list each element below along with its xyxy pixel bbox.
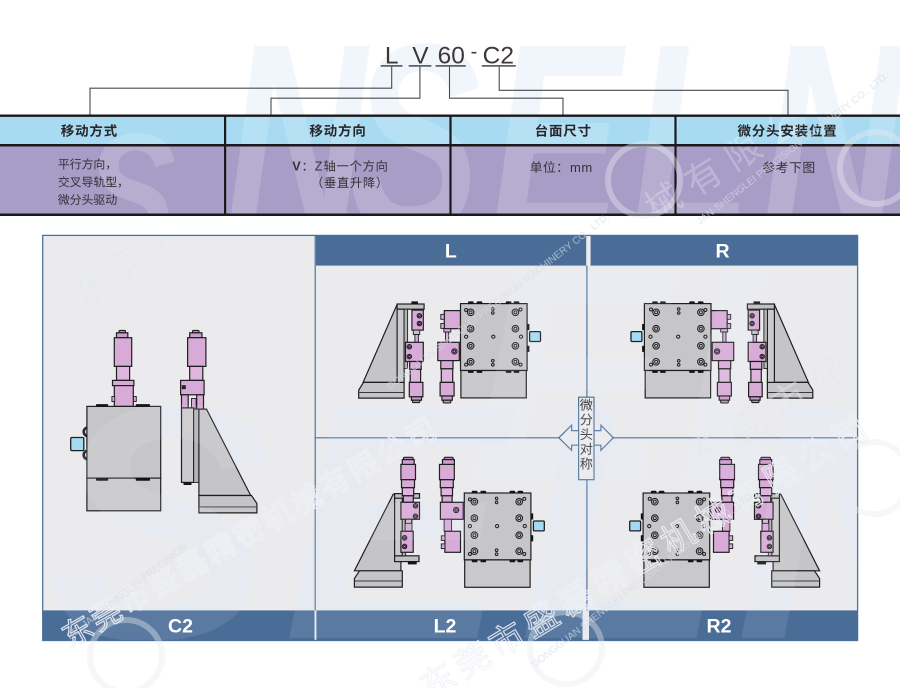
svg-text:mm: mm <box>570 160 593 175</box>
svg-text:L: L <box>445 241 457 263</box>
svg-text:V: V <box>292 160 301 174</box>
svg-text:ELN: ELN <box>470 206 900 542</box>
svg-text:-: - <box>471 41 478 63</box>
svg-text:Z: Z <box>315 160 323 174</box>
